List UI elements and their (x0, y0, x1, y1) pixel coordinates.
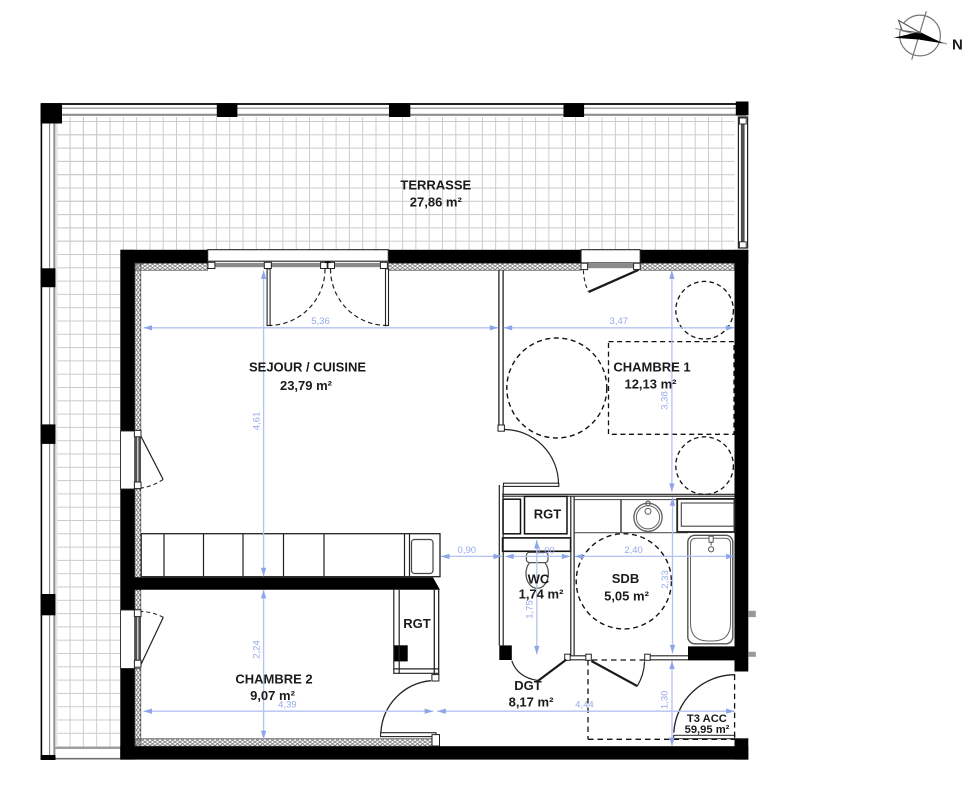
svg-text:5,05 m²: 5,05 m² (604, 589, 649, 604)
svg-text:2,24: 2,24 (251, 640, 262, 659)
svg-text:0,90: 0,90 (458, 545, 477, 556)
svg-text:RGT: RGT (403, 616, 431, 631)
svg-text:27,86 m²: 27,86 m² (410, 195, 463, 210)
svg-text:3,47: 3,47 (610, 316, 629, 327)
svg-text:23,79 m²: 23,79 m² (280, 378, 333, 393)
svg-text:12,13 m²: 12,13 m² (624, 377, 677, 392)
svg-text:1,74 m²: 1,74 m² (519, 587, 564, 602)
svg-text:59,95 m²: 59,95 m² (685, 724, 730, 736)
svg-text:DGT: DGT (514, 678, 542, 693)
svg-text:CHAMBRE 2: CHAMBRE 2 (235, 672, 312, 687)
svg-text:N: N (952, 37, 963, 54)
svg-text:8,17 m²: 8,17 m² (509, 695, 554, 710)
svg-text:RGT: RGT (534, 507, 562, 522)
svg-text:T3 ACC: T3 ACC (687, 713, 727, 725)
svg-text:1,75: 1,75 (525, 600, 536, 619)
svg-text:WC: WC (528, 572, 550, 587)
svg-text:9,07 m²: 9,07 m² (250, 688, 295, 703)
svg-text:4,44: 4,44 (575, 700, 594, 711)
svg-text:SDB: SDB (612, 571, 639, 586)
svg-text:SEJOUR / CUISINE: SEJOUR / CUISINE (249, 360, 366, 375)
svg-text:CHAMBRE 1: CHAMBRE 1 (613, 360, 690, 375)
svg-text:1,30: 1,30 (660, 691, 671, 710)
svg-text:1,00: 1,00 (536, 546, 555, 557)
svg-text:2,33: 2,33 (660, 570, 671, 589)
svg-text:5,36: 5,36 (311, 316, 330, 327)
svg-text:3,38: 3,38 (660, 391, 671, 410)
svg-text:2,40: 2,40 (624, 545, 643, 556)
svg-text:4,61: 4,61 (251, 412, 262, 431)
svg-text:TERRASSE: TERRASSE (400, 178, 471, 193)
